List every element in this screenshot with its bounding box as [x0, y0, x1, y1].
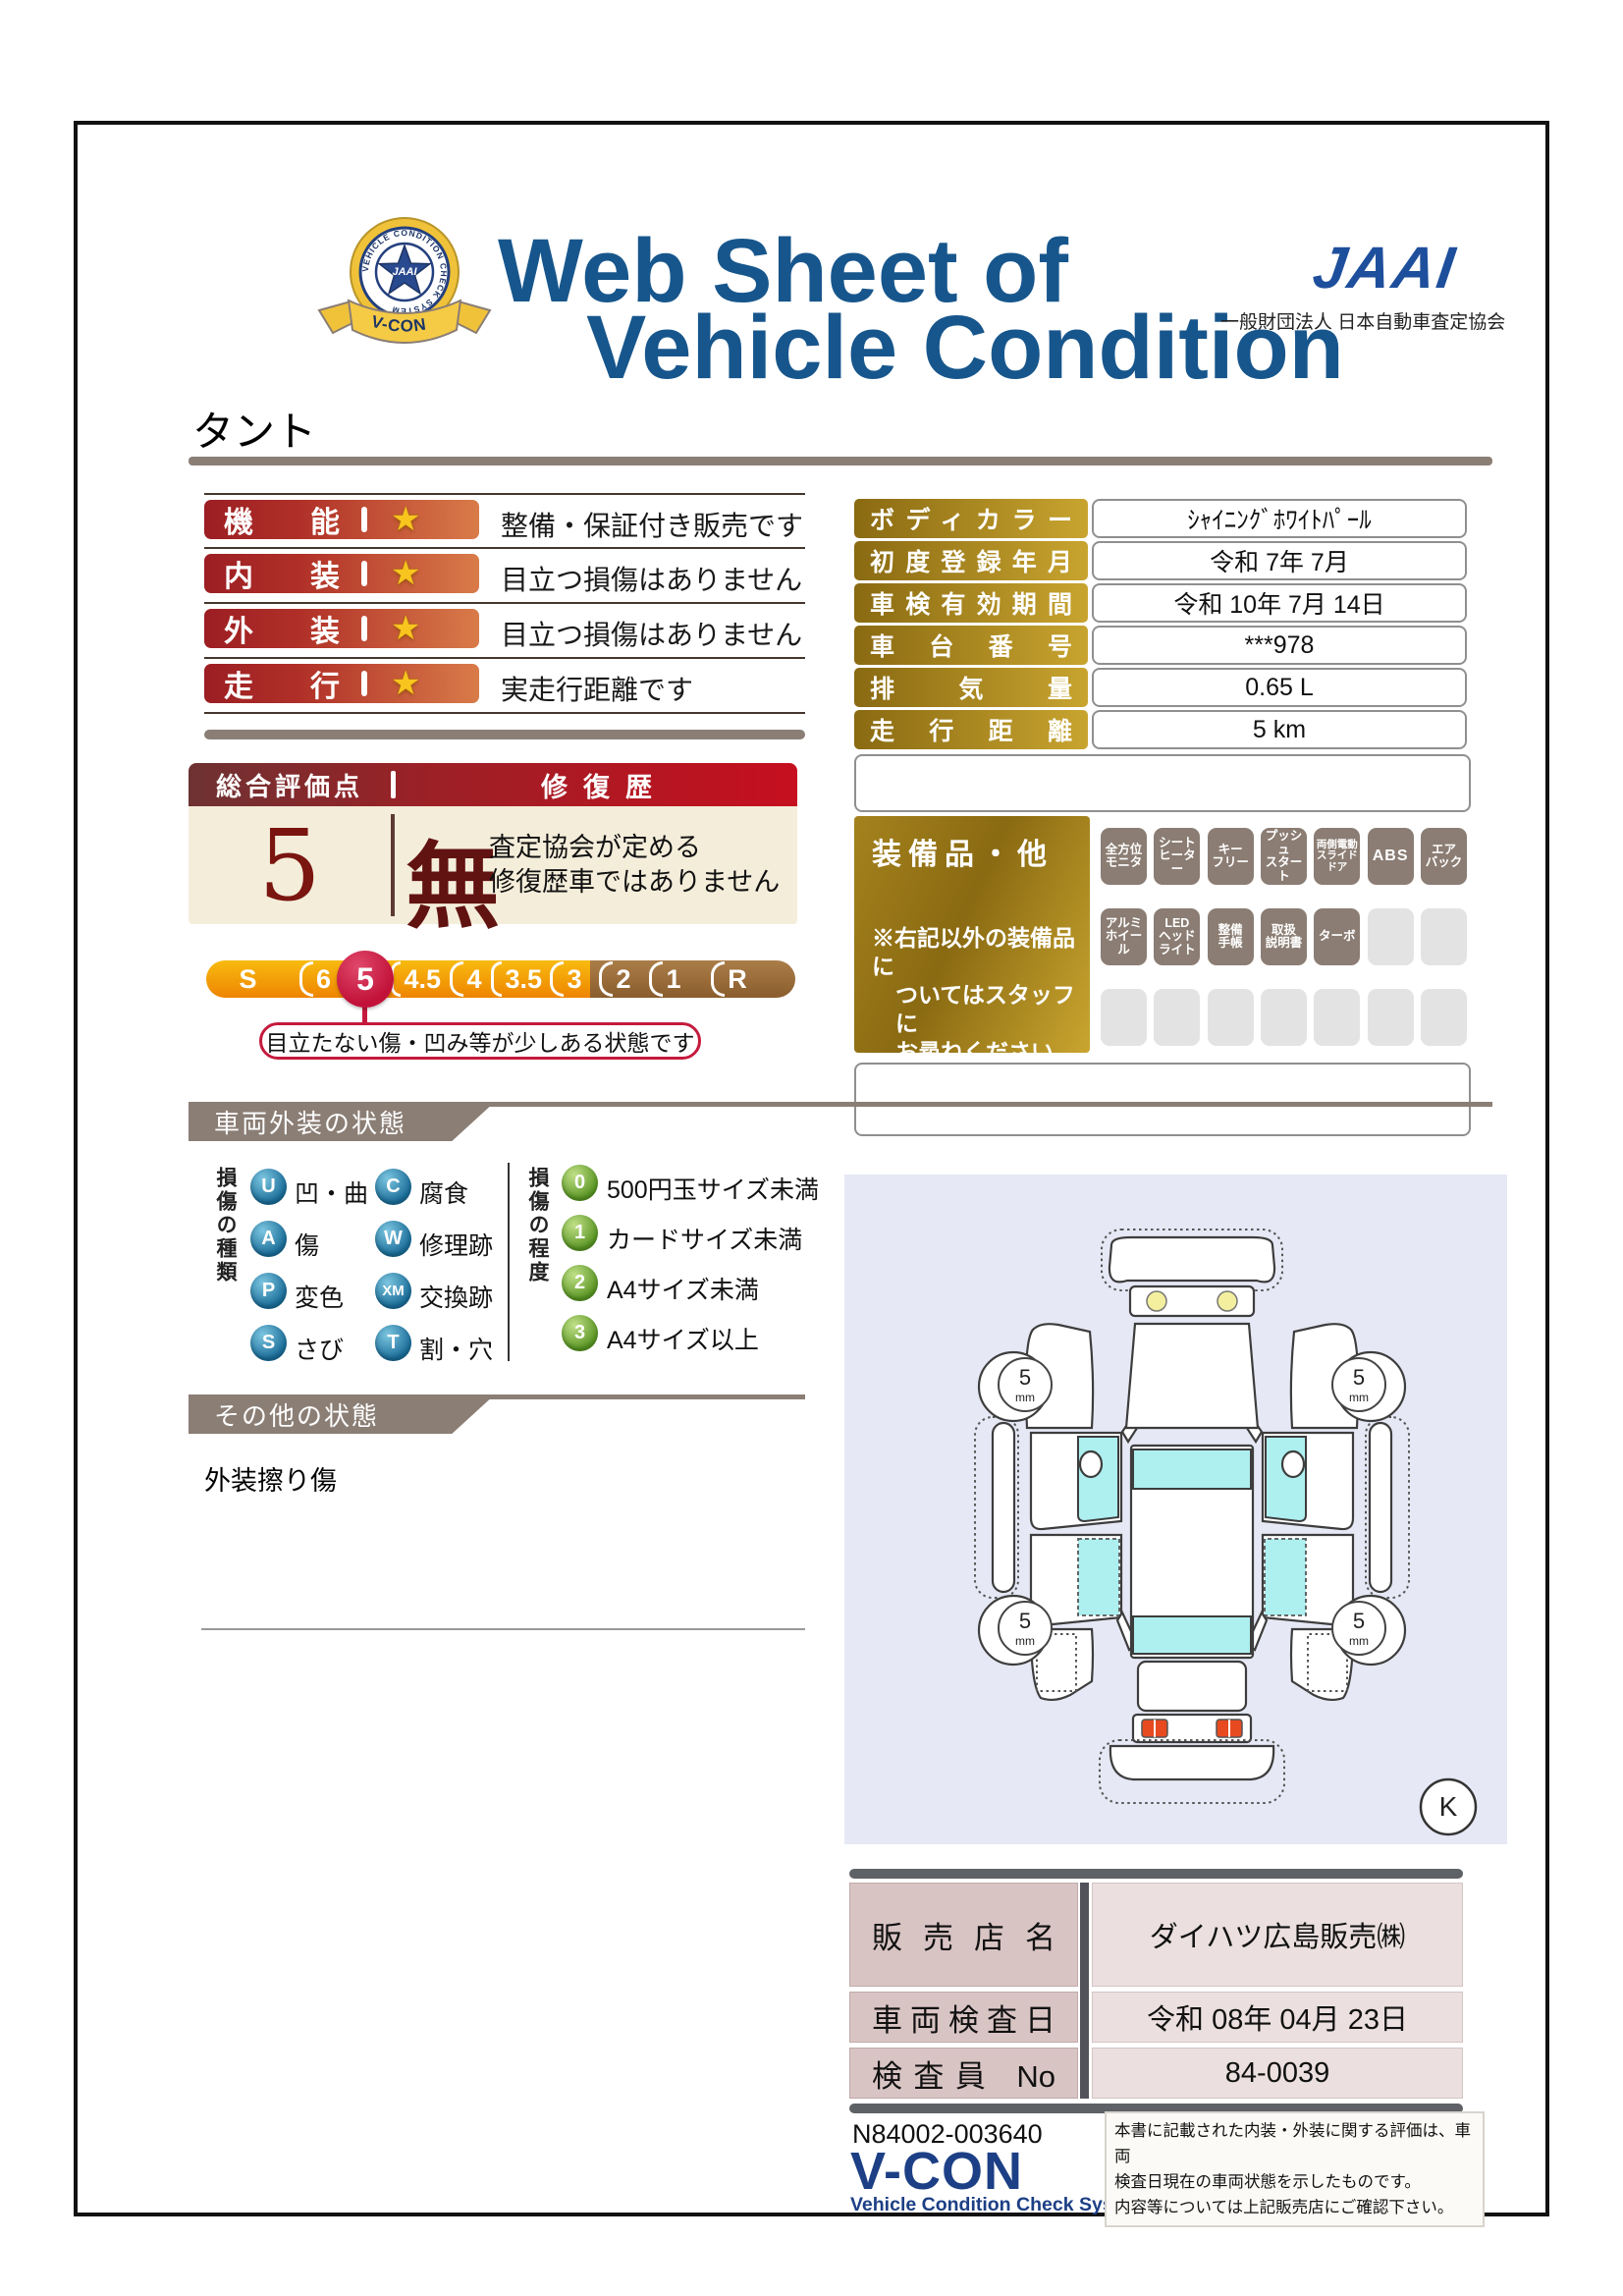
- equipment-note: ※右記以外の装備品に ついてはスタッフに お尋ねください。: [872, 924, 1090, 1066]
- exterior-section-banner: 車両外装の状態: [189, 1102, 495, 1141]
- tire-depth-value: 5: [1353, 1365, 1365, 1390]
- damage-label: 腐食: [419, 1175, 468, 1210]
- equipment-badge: プッシュ スタート: [1261, 828, 1307, 885]
- rating-comment: 目立つ損傷はありません: [501, 614, 802, 653]
- equipment-badge: キー フリー: [1208, 828, 1254, 885]
- rating-label: 外装: [224, 607, 340, 650]
- scale-separator: [649, 961, 663, 997]
- tire-depth-value: 5: [1353, 1609, 1365, 1633]
- equipment-badge: アルミ ホイール: [1101, 908, 1147, 965]
- damage-label: 傷: [295, 1227, 319, 1262]
- inspection-date-value: 令和 08年 04月 23日: [1092, 1992, 1463, 2043]
- equipment-title: 装備品・他: [872, 830, 1090, 873]
- score-callout: 目立たない傷・凹み等が少しある状態です: [259, 1022, 701, 1060]
- disclaimer-box: 本書に記載された内装・外装に関する評価は、車両 検査日現在の車両状態を示したもの…: [1105, 2111, 1485, 2227]
- empty-note-box: [854, 1063, 1471, 1136]
- scale-segment-4-5: 4.5: [391, 960, 441, 998]
- jaai-logo: JAAI: [1309, 234, 1460, 301]
- equipment-badge: 両側電動 スライド ドア: [1314, 828, 1360, 885]
- jaai-org-name: 一般財団法人 日本自動車査定協会: [1220, 307, 1505, 334]
- repair-note-line2: 修復歴車ではありません: [489, 865, 780, 900]
- pipe-separator: [361, 561, 367, 586]
- scale-separator: [491, 961, 502, 997]
- damage-types-title: 損傷の種類: [210, 1167, 240, 1285]
- score-scale-bar: S 6 4.5 4 3.5 3 2 1 R: [206, 960, 795, 998]
- divider: [204, 602, 805, 604]
- rating-comment: 実走行距離です: [501, 669, 693, 708]
- damage-code-P: P: [250, 1273, 287, 1309]
- equipment-badge: 全方位 モニタ: [1101, 828, 1147, 885]
- tire-depth-unit: mm: [1015, 1391, 1035, 1404]
- car-diagram-panel: 5 mm 5 mm 5 mm 5 mm K: [844, 1175, 1507, 1844]
- grade-label: 500円玉サイズ未満: [607, 1171, 819, 1206]
- equipment-badge: 整備 手帳: [1208, 908, 1254, 965]
- scale-segment-2: 2: [590, 960, 640, 998]
- equipment-badge: エア バック: [1421, 828, 1467, 885]
- damage-grades-title: 損傷の程度: [522, 1167, 552, 1285]
- equipment-badge-empty: [1314, 989, 1360, 1046]
- vehicle-condition-sheet: VEHICLE CONDITION CHECK SYSTEM JAAI V-CO…: [0, 0, 1623, 2296]
- divider: [204, 657, 805, 659]
- info-value-bodycolor: ｼｬｲﾆﾝｸﾞﾎﾜｲﾄﾊﾟｰﾙ: [1092, 499, 1467, 538]
- damage-label: 割・穴: [419, 1331, 493, 1366]
- inspector-no-value: 84-0039: [1092, 2048, 1463, 2099]
- damage-label: 修理跡: [419, 1227, 493, 1262]
- rating-comment: 整備・保証付き販売です: [501, 505, 803, 544]
- diagram-corner-label: K: [1439, 1791, 1458, 1822]
- damage-code-S: S: [250, 1325, 287, 1361]
- disclaimer-line: 本書に記載された内装・外装に関する評価は、車両: [1114, 2118, 1475, 2169]
- disclaimer-line: 検査日現在の車両状態を示したものです。: [1114, 2169, 1475, 2195]
- tire-depth-unit: mm: [1349, 1634, 1369, 1648]
- inspector-no-label: 検査員 No: [849, 2048, 1078, 2099]
- equipment-badge-grid: 全方位 モニタ シート ヒーター キー フリー プッシュ スタート 両側電動 ス…: [1101, 828, 1467, 1045]
- divider: [204, 547, 805, 549]
- repair-note-line1: 査定協会が定める: [489, 831, 780, 865]
- grade-label: A4サイズ未満: [607, 1271, 759, 1306]
- info-label-bodycolor: ボディカラー: [854, 499, 1088, 538]
- rating-row-function: 機能 ★: [204, 500, 479, 539]
- divider: [1080, 1883, 1089, 2099]
- scale-segment-3-5: 3.5: [491, 960, 542, 998]
- star-icon: ★: [391, 609, 420, 648]
- scale-separator: [299, 961, 313, 997]
- vcon-badge-logo: VEHICLE CONDITION CHECK SYSTEM JAAI V-CO…: [311, 216, 498, 365]
- info-value-first-registration: 令和 7年 7月: [1092, 541, 1467, 580]
- equipment-header: 装備品・他 ※右記以外の装備品に ついてはスタッフに お尋ねください。: [854, 816, 1090, 1053]
- overall-score-title: 総合評価点: [189, 767, 391, 803]
- info-label-displacement: 排気量: [854, 668, 1088, 707]
- grade-code-1: 1: [562, 1215, 598, 1251]
- grade-code-2: 2: [562, 1265, 598, 1301]
- damage-label: さび: [295, 1331, 344, 1366]
- equipment-badge-empty: [1368, 989, 1414, 1046]
- damage-code-W: W: [375, 1221, 411, 1257]
- info-label-first-registration: 初度登録年月: [854, 541, 1088, 580]
- info-value-chassis-no: ***978: [1092, 626, 1467, 665]
- info-label-mileage: 走行距離: [854, 710, 1088, 749]
- equipment-badge: ABS: [1368, 828, 1414, 885]
- divider: [204, 493, 805, 495]
- overall-score-header: 総合評価点 修復歴: [189, 763, 797, 806]
- tire-depth-unit: mm: [1015, 1634, 1035, 1648]
- equipment-badge: LED ヘッド ライト: [1154, 908, 1200, 965]
- star-icon: ★: [391, 664, 420, 703]
- rating-row-mileage: 走行 ★: [204, 664, 479, 703]
- table-top-bar: [849, 1869, 1463, 1879]
- vcon-logo: V-CON: [850, 2141, 1023, 2202]
- damage-code-T: T: [375, 1325, 411, 1361]
- equipment-badge-empty: [1208, 989, 1254, 1046]
- divider: [189, 457, 1492, 465]
- disclaimer-line: 内容等については上記販売店にご確認下さい。: [1114, 2195, 1475, 2220]
- rating-label: 機能: [224, 498, 340, 541]
- rating-comment: 目立つ損傷はありません: [501, 559, 802, 598]
- scale-separator: [450, 961, 463, 997]
- scale-segment-S: S: [206, 960, 290, 998]
- rating-label: 内装: [224, 552, 340, 595]
- star-icon: ★: [391, 554, 420, 593]
- rating-row-interior: 内装 ★: [204, 554, 479, 593]
- vehicle-name: タント: [192, 399, 316, 459]
- divider: [201, 1628, 805, 1630]
- equipment-badge-empty: [1154, 989, 1200, 1046]
- equipment-badge-empty: [1368, 908, 1414, 965]
- grade-code-3: 3: [562, 1315, 598, 1351]
- dealer-name-value: ダイハツ広島販売㈱: [1092, 1883, 1463, 1987]
- divider: [391, 814, 395, 916]
- scale-segment-4: 4: [441, 960, 491, 998]
- damage-code-U: U: [250, 1169, 287, 1205]
- other-condition-note: 外装擦り傷: [204, 1459, 337, 1498]
- repair-history-value: 無: [406, 810, 500, 947]
- badge-star-text: JAAI: [392, 266, 417, 278]
- damage-code-XM: XM: [375, 1273, 411, 1309]
- grade-label: A4サイズ以上: [607, 1321, 759, 1356]
- selected-score-marker: 5: [337, 951, 394, 1008]
- scale-separator: [711, 961, 725, 997]
- equipment-badge-empty: [1421, 989, 1467, 1046]
- rating-row-exterior: 外装 ★: [204, 609, 479, 648]
- divider: [508, 1163, 510, 1361]
- overall-score-value: 5: [189, 806, 391, 924]
- dealer-name-label: 販売店名: [849, 1883, 1078, 1987]
- car-diagram: 5 mm 5 mm 5 mm 5 mm K: [844, 1175, 1507, 1844]
- tire-depth-value: 5: [1019, 1365, 1031, 1390]
- vcon-logo-subtitle: Vehicle Condition Check System: [850, 2194, 1147, 2216]
- tire-depth-unit: mm: [1349, 1391, 1369, 1404]
- pipe-separator: [361, 616, 367, 641]
- divider: [204, 712, 805, 714]
- scale-separator: [550, 961, 564, 997]
- equipment-badge-empty: [1101, 989, 1147, 1046]
- damage-code-A: A: [250, 1221, 287, 1257]
- other-section-banner: その他の状態: [189, 1394, 495, 1434]
- damage-label: 凹・曲: [295, 1175, 368, 1210]
- grade-label: カードサイズ未満: [607, 1221, 802, 1256]
- scale-segment-R: R: [690, 960, 795, 998]
- info-value-mileage: 5 km: [1092, 710, 1467, 749]
- equipment-badge-empty: [1421, 908, 1467, 965]
- info-value-inspection-valid: 令和 10年 7月 14日: [1092, 583, 1467, 623]
- damage-code-C: C: [375, 1169, 411, 1205]
- star-icon: ★: [391, 500, 420, 539]
- empty-note-box: [854, 754, 1471, 812]
- info-label-inspection-valid: 車検有効期間: [854, 583, 1088, 623]
- rating-label: 走行: [224, 662, 340, 705]
- scale-segment-6: 6: [290, 960, 341, 998]
- equipment-badge: 取扱 説明書: [1261, 908, 1307, 965]
- scale-separator: [599, 961, 613, 997]
- inspection-date-label: 車両検査日: [849, 1992, 1078, 2043]
- damage-label: 交換跡: [419, 1279, 493, 1314]
- pipe-separator: [361, 671, 367, 696]
- info-label-chassis-no: 車台番号: [854, 626, 1088, 665]
- tire-depth-value: 5: [1019, 1609, 1031, 1633]
- repair-history-note: 査定協会が定める 修復歴車ではありません: [489, 831, 780, 900]
- overall-score-body: 5 無 査定協会が定める 修復歴車ではありません: [189, 806, 797, 924]
- equipment-badge: ターボ: [1314, 908, 1360, 965]
- repair-history-title: 修復歴: [396, 766, 797, 804]
- equipment-badge: シート ヒーター: [1154, 828, 1200, 885]
- info-value-displacement: 0.65 L: [1092, 668, 1467, 707]
- equipment-badge-empty: [1261, 989, 1307, 1046]
- grade-code-0: 0: [562, 1165, 598, 1201]
- scale-segment-3: 3: [542, 960, 590, 998]
- damage-label: 変色: [295, 1279, 344, 1314]
- pipe-separator: [361, 507, 367, 532]
- scale-segment-1: 1: [640, 960, 690, 998]
- divider: [204, 730, 805, 739]
